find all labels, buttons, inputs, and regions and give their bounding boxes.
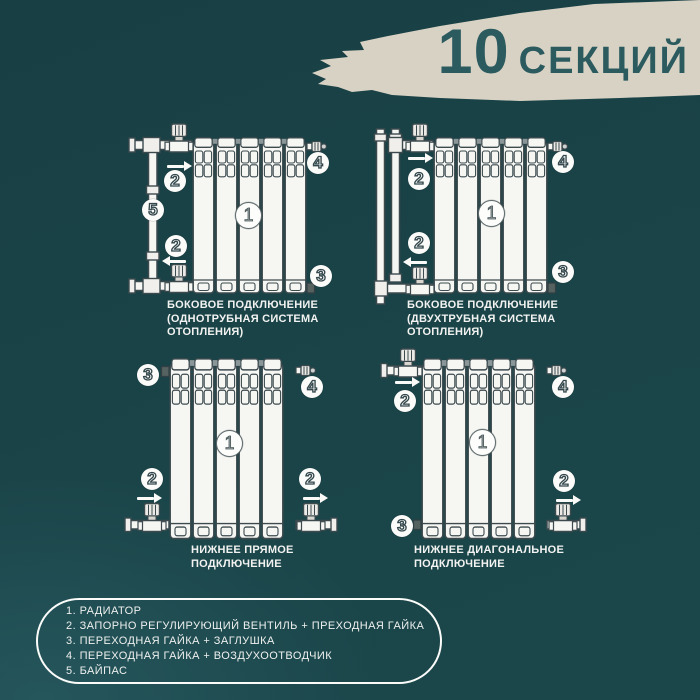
sections-word: СЕКЦИЙ	[519, 42, 689, 80]
air-vent-icon	[307, 142, 326, 152]
sections-count: 10	[438, 21, 510, 84]
callout-badge: 1	[235, 202, 262, 229]
plug-icon	[548, 283, 556, 293]
callout-badge: 2	[299, 468, 321, 490]
page-title: 10 СЕКЦИЙ	[438, 21, 689, 84]
flow-arrow-left-icon	[410, 261, 427, 264]
callout-badge: 5	[142, 199, 164, 221]
callout-badge: 3	[137, 364, 159, 386]
diagram-caption-side-one-pipe: БОКОВОЕ ПОДКЛЮЧЕНИЕ (ОДНОТРУБНАЯ СИСТЕМА…	[167, 299, 319, 340]
air-vent-icon	[548, 142, 567, 152]
radiator-diagrams-art	[0, 0, 700, 700]
diagram-side-two-pipe	[375, 124, 568, 304]
flow-arrow-left-icon	[169, 260, 186, 263]
callout-badge: 2	[408, 168, 430, 190]
flow-arrow-right-icon	[137, 497, 154, 500]
callout-badge: 2	[164, 170, 186, 192]
diagram-caption-bottom-diagonal: НИЖНЕЕ ДИАГОНАЛЬНОЕ ПОДКЛЮЧЕНИЕ	[414, 544, 564, 571]
callout-badge: 4	[552, 151, 574, 173]
callout-badge: 2	[141, 468, 163, 490]
legend-box: 1. РАДИАТОР 2. ЗАПОРНО РЕГУЛИРУЮЩИЙ ВЕНТ…	[36, 598, 442, 684]
flow-arrow-right-icon	[395, 381, 412, 384]
plug-icon	[414, 520, 422, 530]
legend-item-bypass: 5. БАЙПАС	[66, 664, 420, 679]
callout-badge: 2	[394, 390, 416, 412]
callout-badge: 3	[391, 515, 413, 537]
valve-icon	[394, 349, 422, 377]
callout-badge: 1	[216, 430, 243, 457]
legend-item-air-vent: 4. ПЕРЕХОДНАЯ ГАЙКА + ВОЗДУХООТВОДЧИК	[66, 649, 420, 664]
valve-icon	[165, 124, 193, 152]
valve-icon	[406, 267, 434, 295]
callout-badge: 3	[552, 261, 574, 283]
callout-badge: 4	[307, 152, 329, 174]
callout-badge: 2	[553, 470, 575, 492]
air-vent-icon	[547, 366, 566, 376]
diagram-caption-side-two-pipe: БОКОВОЕ ПОДКЛЮЧЕНИЕ (ДВУХТРУБНАЯ СИСТЕМА…	[407, 299, 558, 340]
product-infographic: 10 СЕКЦИЙ	[0, 0, 700, 700]
callout-badge: 4	[552, 376, 574, 398]
valve-icon	[297, 504, 325, 532]
legend-item-radiator: 1. РАДИАТОР	[66, 604, 420, 619]
callout-badge: 3	[310, 265, 332, 287]
flow-arrow-right-icon	[556, 499, 573, 502]
callout-badge: 4	[301, 376, 323, 398]
callout-badge: 1	[469, 429, 496, 456]
callout-badge: 1	[478, 200, 505, 227]
legend-item-valve: 2. ЗАПОРНО РЕГУЛИРУЮЩИЙ ВЕНТИЛЬ + ПРЕХОД…	[66, 619, 420, 634]
legend-item-plug: 3. ПЕРЕХОДНАЯ ГАЙКА + ЗАГЛУШКА	[66, 634, 420, 649]
air-vent-icon	[296, 366, 315, 376]
valve-icon	[138, 504, 166, 532]
flow-arrow-right-icon	[167, 165, 184, 168]
flow-arrow-right-icon	[303, 497, 320, 500]
diagram-caption-bottom-straight: НИЖНЕЕ ПРЯМОЕ ПОДКЛЮЧЕНИЕ	[191, 544, 294, 571]
plug-icon	[162, 367, 170, 377]
valve-icon	[165, 265, 193, 293]
callout-badge: 2	[408, 232, 430, 254]
flow-arrow-right-icon	[408, 157, 425, 160]
valve-icon	[406, 124, 434, 152]
valve-icon	[549, 504, 577, 532]
callout-badge: 2	[165, 235, 187, 257]
